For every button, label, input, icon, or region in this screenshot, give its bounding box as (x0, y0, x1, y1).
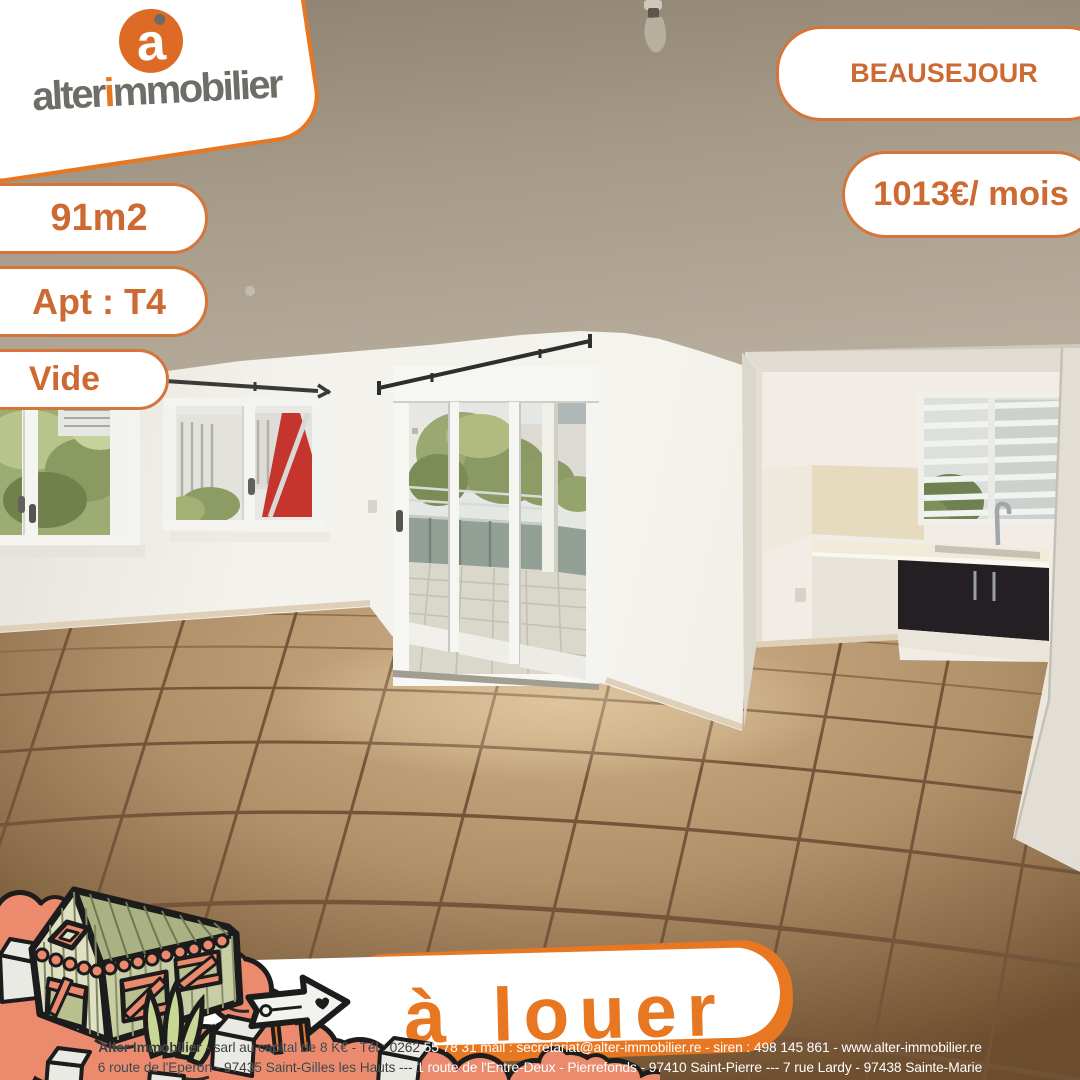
svg-text:alterimmobilier: alterimmobilier (31, 62, 284, 119)
svg-text:a: a (135, 13, 168, 72)
